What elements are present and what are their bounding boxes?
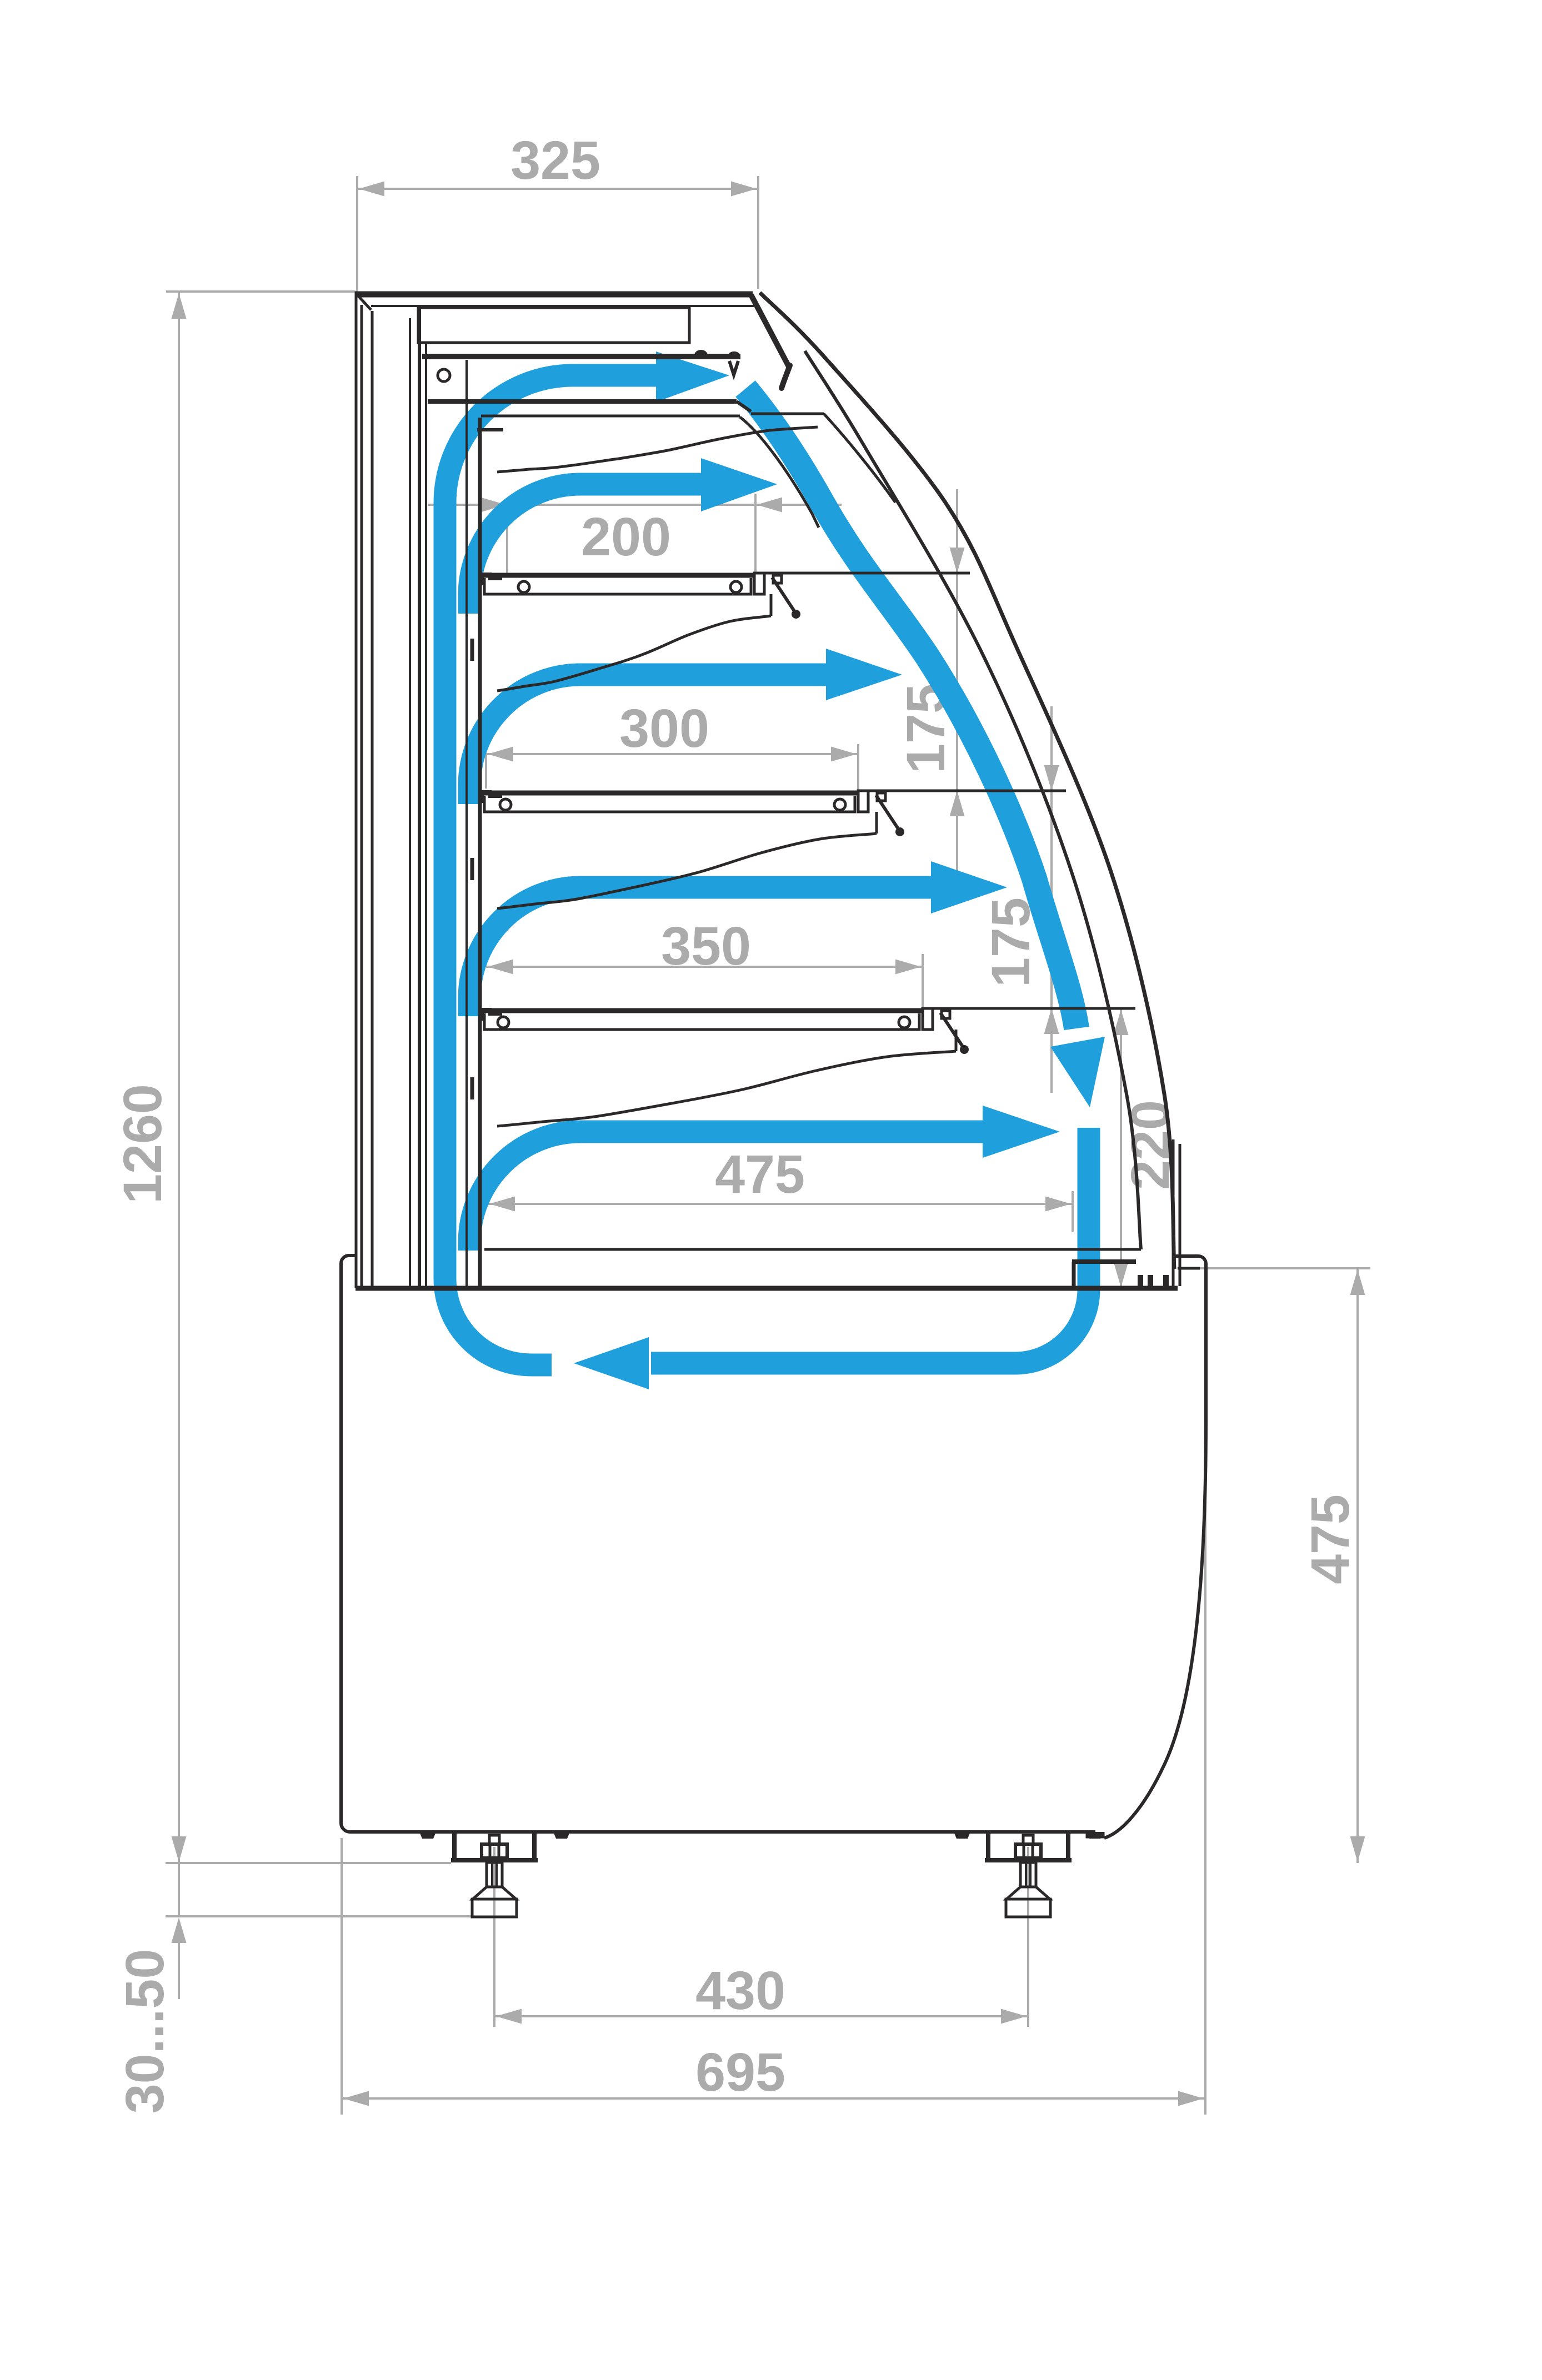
svg-text:430: 430 bbox=[695, 1960, 785, 2021]
svg-text:475: 475 bbox=[715, 1144, 805, 1204]
svg-text:325: 325 bbox=[510, 130, 600, 190]
svg-text:300: 300 bbox=[619, 698, 709, 759]
svg-text:200: 200 bbox=[581, 506, 671, 567]
svg-text:695: 695 bbox=[695, 2042, 785, 2102]
svg-text:1260: 1260 bbox=[112, 1084, 173, 1204]
svg-text:475: 475 bbox=[1300, 1494, 1360, 1584]
svg-text:30...50: 30...50 bbox=[114, 1949, 175, 2114]
svg-text:350: 350 bbox=[661, 916, 751, 976]
